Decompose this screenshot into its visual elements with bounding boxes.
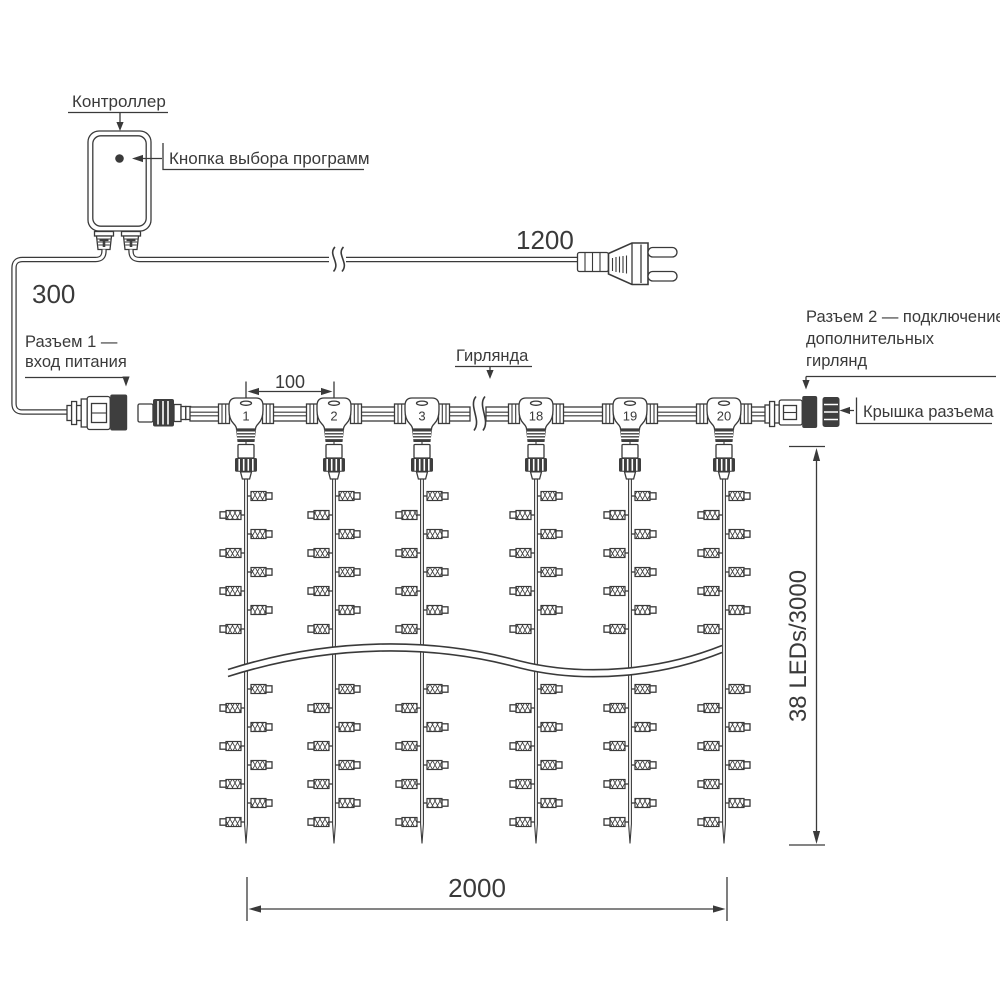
- tee-number: 2: [330, 409, 337, 424]
- connector2-label-line2: дополнительных: [806, 330, 935, 348]
- lead-length-label: 300: [32, 279, 75, 309]
- led-cap: [442, 531, 448, 537]
- led-bulb: [396, 704, 421, 713]
- led-bulb: [423, 685, 448, 694]
- led-cap: [698, 512, 704, 518]
- led-bulb: [725, 685, 750, 694]
- led-bulb: [423, 761, 448, 770]
- light-string: [333, 479, 336, 844]
- led-bulb: [698, 704, 723, 713]
- led-bulb: [510, 780, 535, 789]
- led-bulb: [220, 704, 245, 713]
- led-bulb: [698, 780, 723, 789]
- plug-prong-top: [648, 248, 677, 258]
- led-cap: [396, 819, 402, 825]
- led-cap: [510, 781, 516, 787]
- controller-gland-left: [95, 232, 114, 250]
- led-bulb: [604, 587, 629, 596]
- led-bulb: [537, 492, 562, 501]
- drop-assembly: 3: [395, 398, 450, 844]
- led-cap: [510, 743, 516, 749]
- rail-segment: [449, 407, 470, 421]
- led-cap: [308, 705, 314, 711]
- led-bulb: [308, 587, 333, 596]
- led-bulb: [220, 587, 245, 596]
- controller-box: [88, 131, 151, 250]
- led-cap: [396, 705, 402, 711]
- led-cap: [442, 800, 448, 806]
- led-bulb: [220, 511, 245, 520]
- led-cap: [442, 607, 448, 613]
- led-bulb: [220, 549, 245, 558]
- led-bulb: [423, 568, 448, 577]
- led-bulb: [220, 742, 245, 751]
- led-bulb: [308, 704, 333, 713]
- led-bulb: [604, 704, 629, 713]
- led-bulb: [725, 761, 750, 770]
- diagram-canvas: 123181920 Контроллер Кнопка выбора прогр…: [0, 0, 1000, 1000]
- dimension-width: 2000: [247, 873, 727, 921]
- plug-prong-bottom: [648, 272, 677, 282]
- dimension-height: 38 LEDs/3000: [785, 447, 825, 846]
- height-value: 38 LEDs/3000: [785, 570, 812, 722]
- led-bulb: [308, 818, 333, 827]
- led-cap: [604, 588, 610, 594]
- led-cap: [354, 531, 360, 537]
- led-cap: [396, 743, 402, 749]
- hanging-cable: [228, 644, 722, 677]
- led-cap: [698, 743, 704, 749]
- led-cap: [604, 819, 610, 825]
- led-cap: [698, 626, 704, 632]
- led-cap: [354, 762, 360, 768]
- rail-segment: [361, 407, 395, 421]
- led-bulb: [308, 549, 333, 558]
- led-cap: [650, 569, 656, 575]
- led-bulb: [604, 511, 629, 520]
- led-bulb: [725, 799, 750, 808]
- rail-segment: [751, 407, 766, 421]
- led-bulb: [631, 606, 656, 615]
- led-cap: [308, 512, 314, 518]
- led-bulb: [335, 492, 360, 501]
- led-bulb: [537, 606, 562, 615]
- led-bulb: [631, 530, 656, 539]
- led-bulb: [604, 742, 629, 751]
- led-cap: [354, 569, 360, 575]
- led-cap: [396, 781, 402, 787]
- hanging-slot: [719, 401, 730, 405]
- led-cap: [266, 686, 272, 692]
- drop-assembly: 18: [509, 398, 564, 844]
- led-bulb: [510, 818, 535, 827]
- led-cap: [442, 569, 448, 575]
- led-cap: [556, 686, 562, 692]
- led-cap: [744, 569, 750, 575]
- led-cap: [744, 724, 750, 730]
- led-bulb: [510, 587, 535, 596]
- led-cap: [744, 762, 750, 768]
- led-bulb: [423, 492, 448, 501]
- led-cap: [556, 607, 562, 613]
- rail-segment: [486, 407, 509, 421]
- led-bulb: [631, 492, 656, 501]
- led-cap: [604, 626, 610, 632]
- led-cap: [604, 781, 610, 787]
- led-bulb: [335, 723, 360, 732]
- led-bulb: [247, 685, 272, 694]
- led-cap: [650, 686, 656, 692]
- led-cap: [650, 724, 656, 730]
- led-cap: [354, 493, 360, 499]
- led-cap: [650, 800, 656, 806]
- led-bulb: [537, 568, 562, 577]
- led-cap: [744, 607, 750, 613]
- connector2-label-line3: гирлянд: [806, 352, 868, 370]
- led-cap: [308, 743, 314, 749]
- led-cap: [442, 493, 448, 499]
- led-bulb: [396, 587, 421, 596]
- led-cap: [698, 705, 704, 711]
- led-bulb: [631, 799, 656, 808]
- led-cap: [510, 512, 516, 518]
- drop-assembly: 1: [219, 398, 274, 844]
- connector1-label-line1: Разъем 1 —: [25, 333, 118, 351]
- led-cap: [744, 493, 750, 499]
- led-bulb: [698, 625, 723, 634]
- led-bulb: [631, 685, 656, 694]
- connector2-label-line1: Разъем 2 — подключение: [806, 308, 1000, 326]
- rail-segment: [273, 407, 307, 421]
- led-cap: [650, 531, 656, 537]
- led-cap: [396, 626, 402, 632]
- led-cap: [556, 762, 562, 768]
- led-bulb: [510, 549, 535, 558]
- light-string: [723, 479, 726, 844]
- led-cap: [220, 550, 226, 556]
- led-cap: [604, 705, 610, 711]
- led-bulb: [335, 685, 360, 694]
- garland-curtain: 123181920: [190, 398, 766, 844]
- led-cap: [266, 569, 272, 575]
- led-cap: [556, 493, 562, 499]
- led-bulb: [510, 704, 535, 713]
- led-cap: [308, 819, 314, 825]
- input-connector-pair: [67, 395, 191, 431]
- led-bulb: [396, 549, 421, 558]
- led-cap: [556, 724, 562, 730]
- rail-segment: [563, 407, 603, 421]
- led-cap: [308, 550, 314, 556]
- hanging-slot: [417, 401, 428, 405]
- led-bulb: [537, 685, 562, 694]
- led-bulb: [396, 818, 421, 827]
- tee-number: 18: [529, 409, 543, 424]
- tee-number: 19: [623, 409, 637, 424]
- led-cap: [556, 531, 562, 537]
- led-cap: [308, 626, 314, 632]
- led-bulb: [396, 780, 421, 789]
- led-bulb: [631, 568, 656, 577]
- led-cap: [354, 800, 360, 806]
- led-bulb: [396, 511, 421, 520]
- led-cap: [220, 781, 226, 787]
- led-bulb: [335, 568, 360, 577]
- led-cap: [220, 626, 226, 632]
- led-cap: [266, 531, 272, 537]
- led-bulb: [247, 723, 272, 732]
- led-cap: [266, 493, 272, 499]
- hanging-slot: [329, 401, 340, 405]
- tee-number: 1: [242, 409, 249, 424]
- male-connector: [67, 395, 127, 431]
- led-bulb: [510, 742, 535, 751]
- light-string: [245, 479, 248, 844]
- led-bulb: [220, 780, 245, 789]
- led-cap: [442, 686, 448, 692]
- led-bulb: [247, 530, 272, 539]
- curtain-light-diagram: 123181920 Контроллер Кнопка выбора прогр…: [0, 0, 1000, 1000]
- width-value: 2000: [448, 873, 506, 903]
- led-bulb: [725, 568, 750, 577]
- led-cap: [698, 588, 704, 594]
- light-string: [535, 479, 538, 844]
- led-bulb: [423, 799, 448, 808]
- led-bulb: [725, 606, 750, 615]
- rail-segment: [657, 407, 697, 421]
- led-bulb: [220, 625, 245, 634]
- led-cap: [604, 512, 610, 518]
- led-cap: [698, 781, 704, 787]
- led-bulb: [725, 723, 750, 732]
- controller-label: Контроллер: [72, 92, 166, 111]
- led-cap: [396, 550, 402, 556]
- output-connector: [765, 396, 817, 428]
- led-bulb: [537, 530, 562, 539]
- led-bulb: [604, 818, 629, 827]
- led-bulb: [423, 530, 448, 539]
- led-bulb: [604, 625, 629, 634]
- led-bulb: [220, 818, 245, 827]
- drop-assembly: 19: [603, 398, 658, 844]
- cord-break-mark: [333, 247, 345, 272]
- led-cap: [650, 762, 656, 768]
- cord-length-label: 1200: [516, 225, 574, 255]
- led-bulb: [308, 742, 333, 751]
- led-bulb: [423, 723, 448, 732]
- led-bulb: [510, 511, 535, 520]
- led-bulb: [247, 492, 272, 501]
- light-string: [629, 479, 632, 844]
- led-cap: [604, 743, 610, 749]
- led-bulb: [631, 723, 656, 732]
- led-bulb: [698, 587, 723, 596]
- led-cap: [442, 724, 448, 730]
- led-cap: [396, 588, 402, 594]
- led-cap: [354, 607, 360, 613]
- power-plug: [578, 243, 678, 285]
- program-select-button: [115, 154, 124, 163]
- led-bulb: [631, 761, 656, 770]
- light-string: [421, 479, 424, 844]
- led-bulb: [537, 761, 562, 770]
- cap-label: Крышка разъема: [863, 403, 994, 421]
- led-cap: [556, 569, 562, 575]
- led-cap: [266, 724, 272, 730]
- led-bulb: [604, 549, 629, 558]
- led-bulb: [604, 780, 629, 789]
- led-bulb: [396, 742, 421, 751]
- led-cap: [308, 588, 314, 594]
- led-cap: [556, 800, 562, 806]
- led-cap: [744, 686, 750, 692]
- led-bulb: [335, 606, 360, 615]
- rail-break-mark: [473, 397, 485, 431]
- led-bulb: [247, 606, 272, 615]
- led-cap: [220, 512, 226, 518]
- led-cap: [510, 626, 516, 632]
- drop-spacing-value: 100: [275, 372, 305, 392]
- led-cap: [354, 686, 360, 692]
- led-cap: [220, 819, 226, 825]
- connector1-label-line2: вход питания: [25, 353, 127, 371]
- dimension-drop-spacing: 100: [246, 372, 334, 398]
- led-bulb: [698, 818, 723, 827]
- led-bulb: [396, 625, 421, 634]
- led-bulb: [510, 625, 535, 634]
- led-cap: [220, 588, 226, 594]
- led-cap: [510, 588, 516, 594]
- led-bulb: [423, 606, 448, 615]
- led-cap: [510, 819, 516, 825]
- led-cap: [510, 550, 516, 556]
- led-cap: [744, 531, 750, 537]
- led-bulb: [725, 530, 750, 539]
- led-cap: [266, 762, 272, 768]
- led-cap: [744, 800, 750, 806]
- led-bulb: [247, 761, 272, 770]
- led-cap: [266, 607, 272, 613]
- led-cap: [266, 800, 272, 806]
- led-bulb: [537, 799, 562, 808]
- led-cap: [604, 550, 610, 556]
- led-cap: [354, 724, 360, 730]
- tee-number: 20: [717, 409, 731, 424]
- hanging-slot: [625, 401, 636, 405]
- tee-number: 3: [418, 409, 425, 424]
- drop-assembly: 2: [307, 398, 362, 844]
- female-connector: [138, 399, 191, 427]
- controller-gland-right: [122, 232, 141, 250]
- led-bulb: [247, 568, 272, 577]
- led-cap: [698, 819, 704, 825]
- led-bulb: [335, 761, 360, 770]
- led-bulb: [725, 492, 750, 501]
- led-cap: [650, 493, 656, 499]
- led-bulb: [335, 530, 360, 539]
- led-cap: [510, 705, 516, 711]
- led-bulb: [247, 799, 272, 808]
- drop-assembly: 20: [697, 398, 752, 844]
- hanging-slot: [531, 401, 542, 405]
- program-button-label: Кнопка выбора программ: [169, 149, 370, 168]
- led-bulb: [698, 549, 723, 558]
- led-cap: [396, 512, 402, 518]
- led-bulb: [537, 723, 562, 732]
- led-bulb: [308, 625, 333, 634]
- rail-segment: [190, 407, 219, 421]
- led-cap: [650, 607, 656, 613]
- led-cap: [220, 743, 226, 749]
- led-cap: [698, 550, 704, 556]
- led-cap: [220, 705, 226, 711]
- led-bulb: [698, 742, 723, 751]
- connector-cap: [823, 397, 840, 427]
- garland-label: Гирлянда: [456, 347, 529, 365]
- hanging-slot: [241, 401, 252, 405]
- led-bulb: [308, 511, 333, 520]
- led-bulb: [698, 511, 723, 520]
- led-cap: [442, 762, 448, 768]
- led-bulb: [335, 799, 360, 808]
- led-bulb: [308, 780, 333, 789]
- led-cap: [308, 781, 314, 787]
